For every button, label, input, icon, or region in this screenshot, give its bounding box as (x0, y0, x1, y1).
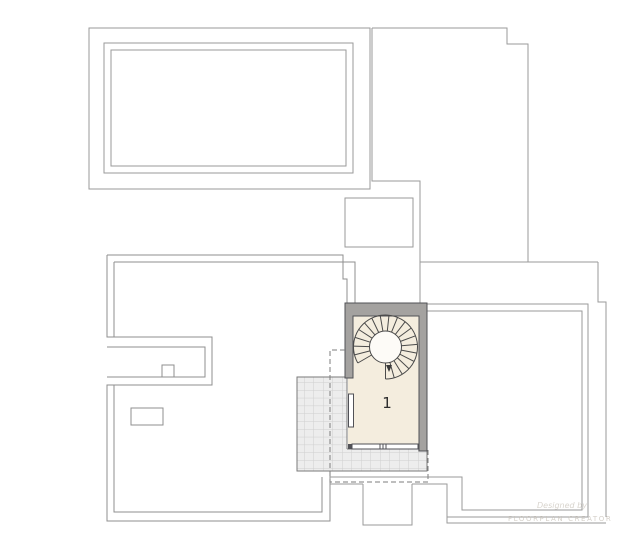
skylight-inner-rect (111, 50, 346, 166)
stair-center-void (370, 331, 402, 363)
stairwell-window (352, 444, 418, 449)
watermark-line1: Designed by (537, 501, 587, 510)
skylight-outer-rect (89, 28, 370, 189)
stairwell-door (349, 394, 354, 427)
terrace-grid-bottom (347, 449, 427, 471)
building-outline-mid (372, 28, 420, 303)
rooflight-rect (345, 198, 413, 247)
bottom-step-outline (363, 484, 412, 525)
floor-plan-canvas: 1 Designed by FLOORPLAN CREATOR (0, 0, 638, 556)
terrace-grid-left (297, 377, 347, 471)
chimney-square (162, 365, 174, 377)
watermark-line2: FLOORPLAN CREATOR (508, 515, 612, 523)
roof-vent-rect (131, 408, 163, 425)
window-end-block (348, 444, 353, 449)
floor-plan-drawing (0, 0, 638, 556)
room-label: 1 (378, 394, 396, 412)
skylight-mid-rect (104, 43, 353, 173)
building-outline-top-right (372, 28, 528, 262)
